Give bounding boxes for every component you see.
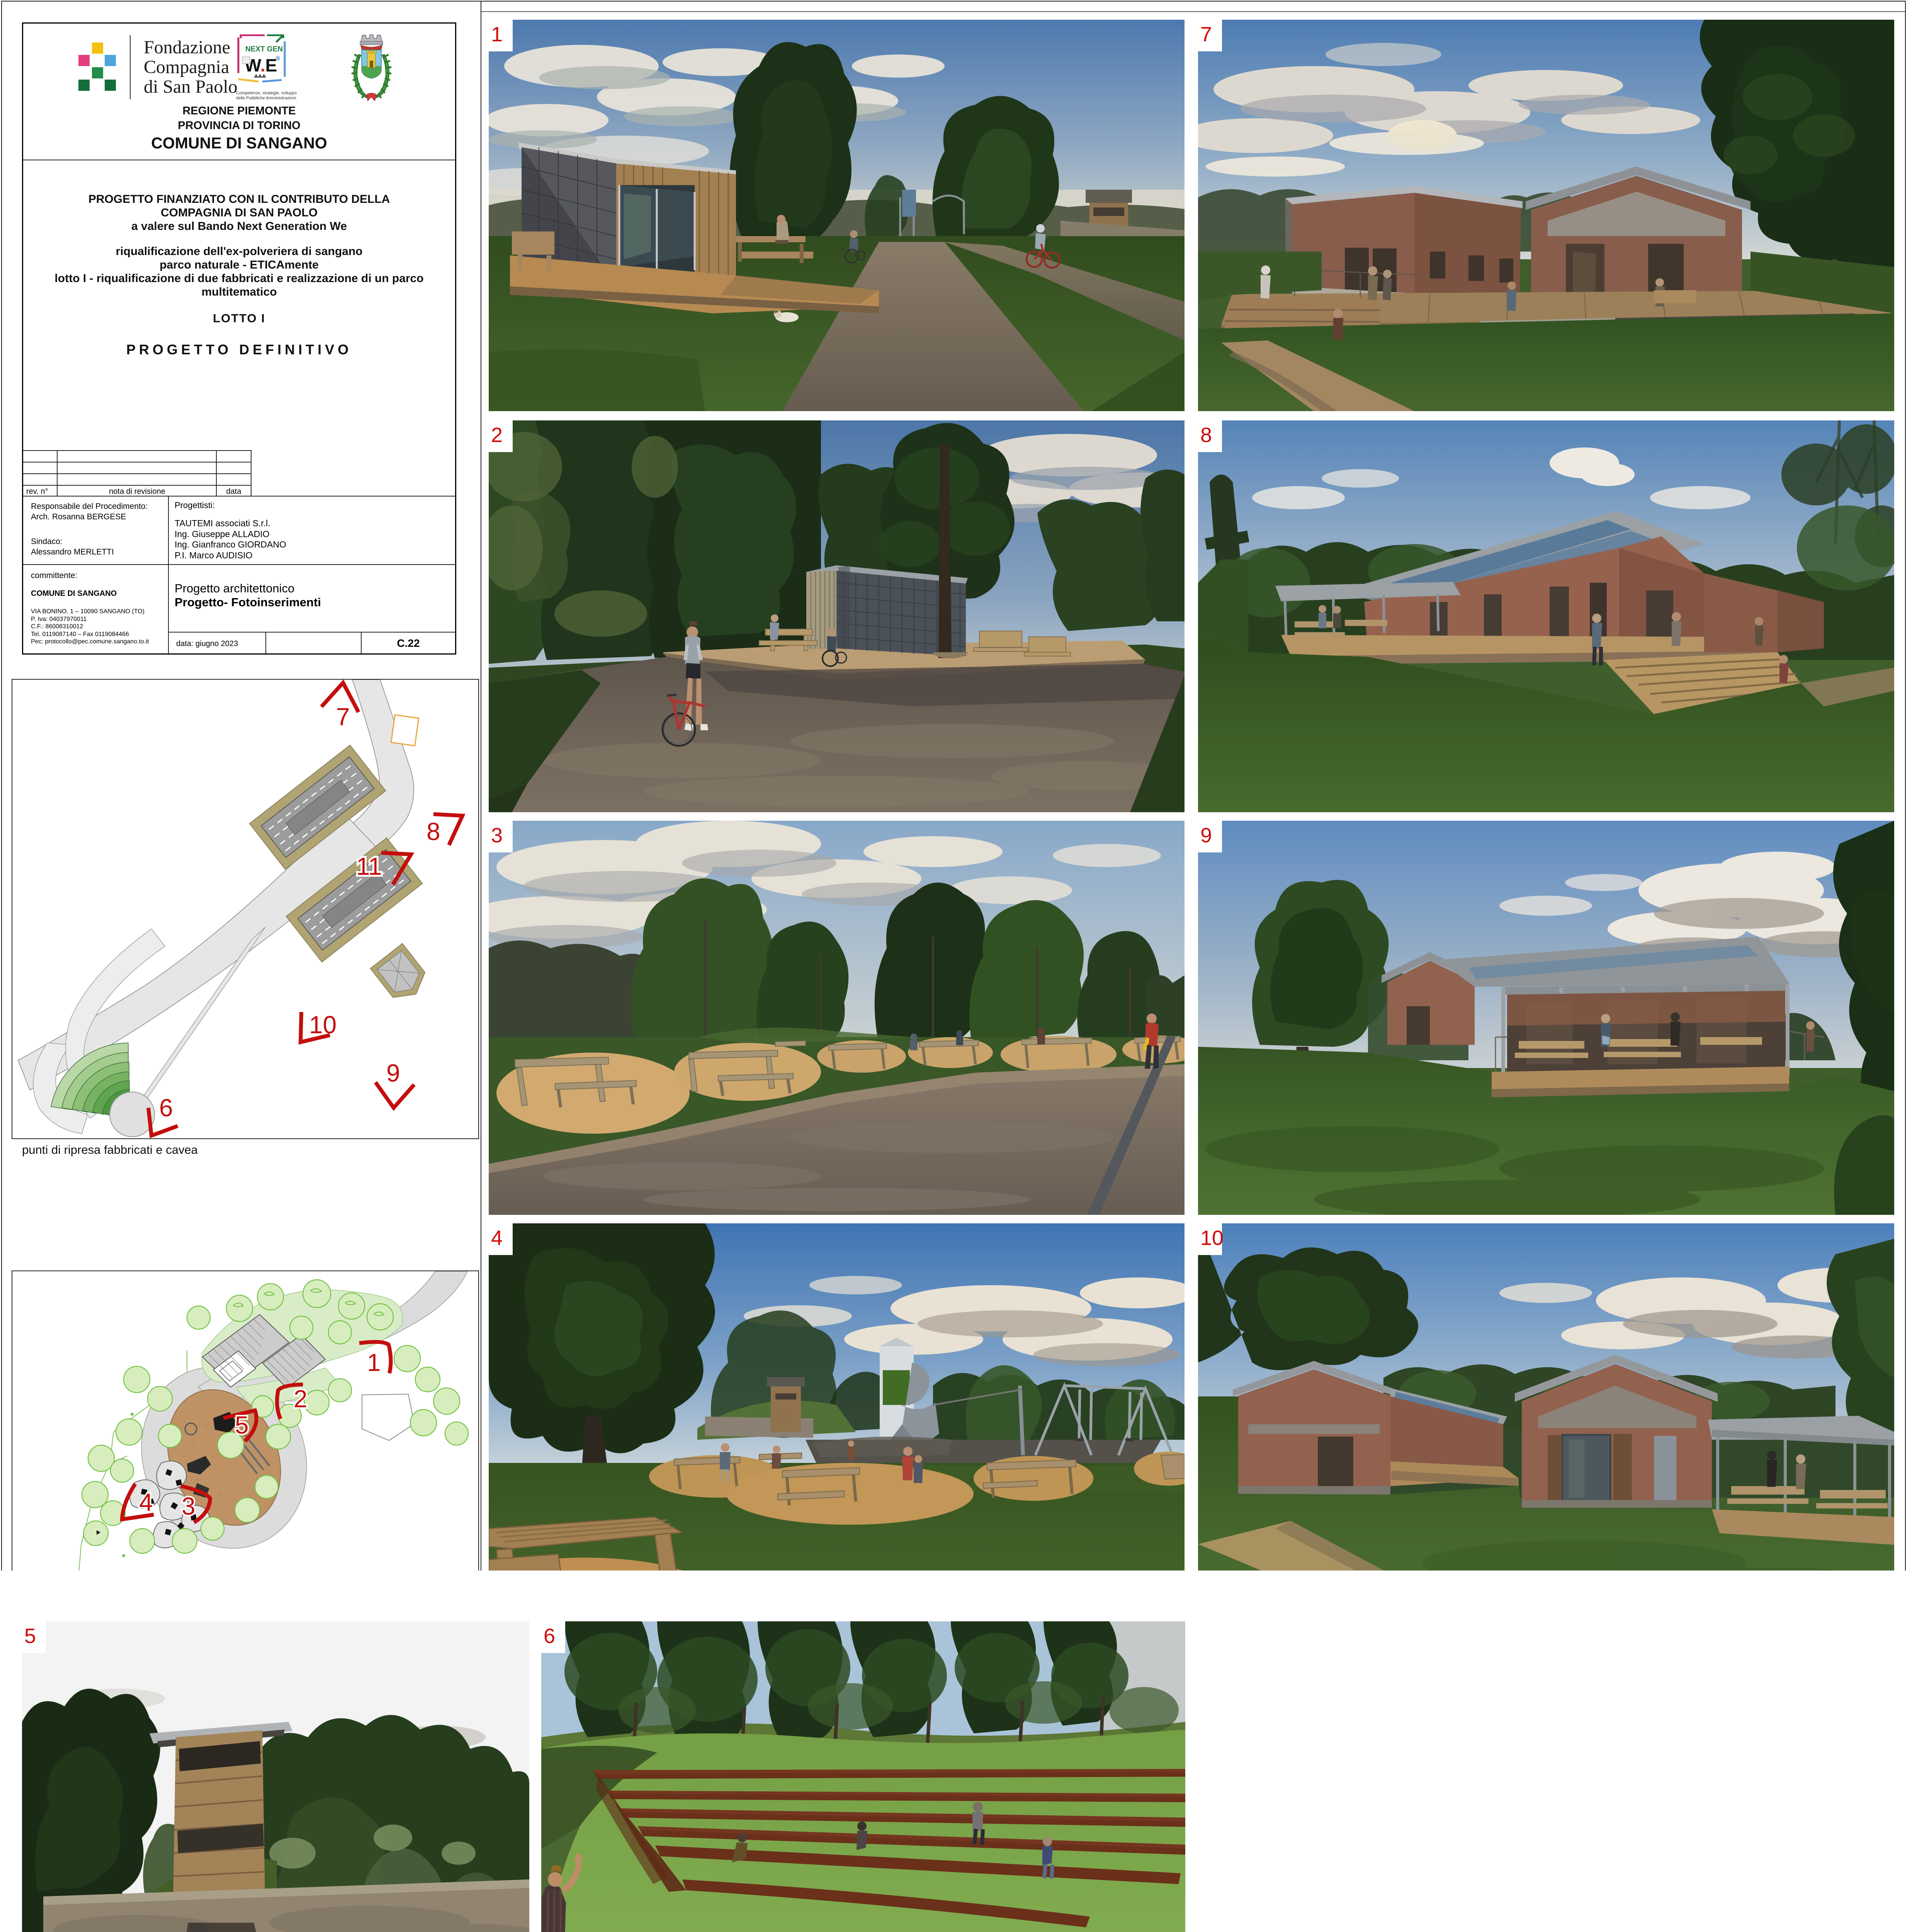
svg-text:6: 6 xyxy=(159,1094,173,1122)
svg-text:8: 8 xyxy=(427,818,440,845)
svg-text:4: 4 xyxy=(139,1488,153,1516)
svg-text:NEXT GEN: NEXT GEN xyxy=(245,45,283,53)
svg-text:10: 10 xyxy=(309,1011,336,1039)
svg-text:3: 3 xyxy=(182,1492,195,1520)
svg-text:5: 5 xyxy=(235,1411,249,1439)
svg-text:1: 1 xyxy=(367,1349,381,1376)
svg-text:11: 11 xyxy=(356,852,382,880)
svg-text:9: 9 xyxy=(386,1059,400,1087)
svg-text:7: 7 xyxy=(336,703,350,731)
svg-text:2: 2 xyxy=(294,1385,308,1413)
